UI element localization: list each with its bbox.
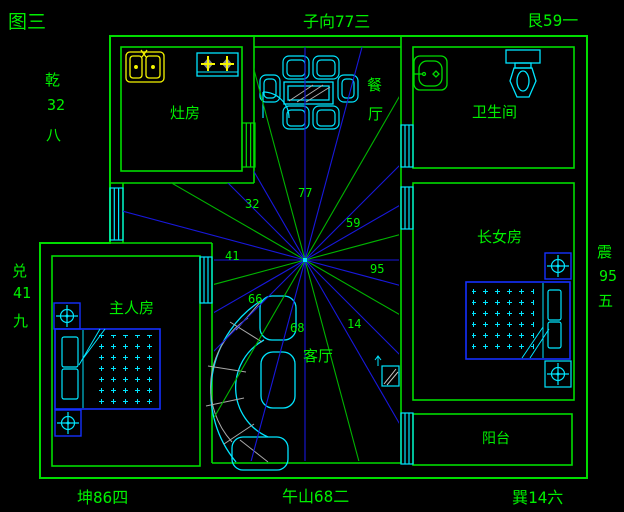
bathroom-sink-icon (414, 56, 447, 90)
compass-ray (68, 260, 305, 323)
nightstand-icon (545, 253, 571, 279)
window-balcony-left (401, 413, 413, 464)
sofa-icon (206, 296, 296, 470)
nightstand-icon (545, 361, 571, 387)
dining-label-char1: 餐 (367, 76, 382, 94)
floorplan-drawing: 77 32 59 41 95 66 68 14 灶房 餐 厅 卫生间 长女房 主… (0, 0, 624, 512)
nightstand-icon (55, 410, 81, 436)
tv-icon (375, 356, 399, 386)
compass-left-lower-2: 41 (13, 284, 31, 302)
balcony-label: 阳台 (482, 431, 510, 447)
compass-right-2: 95 (599, 267, 617, 285)
bathroom-label: 卫生间 (472, 103, 517, 121)
ray-number: 77 (298, 186, 312, 200)
compass-ray (132, 260, 305, 433)
kitchen-sink-icon (126, 50, 164, 82)
chair-icon (313, 106, 339, 129)
burner-icon (220, 56, 234, 71)
window-master-right (200, 257, 212, 303)
compass-bottom-right: 巽14六 (512, 488, 563, 507)
compass-ray (68, 197, 305, 260)
compass-left-upper-2: 32 (47, 96, 65, 114)
ray-number: 32 (245, 197, 259, 211)
compass-ray (183, 260, 306, 472)
compass-top-center: 子向77三 (303, 12, 370, 31)
ray-number: 66 (248, 292, 262, 306)
daughter-bed-icon (466, 282, 570, 359)
kitchen-label: 灶房 (170, 104, 200, 122)
compass-left-lower-3: 九 (13, 312, 28, 330)
compass-left-upper-1: 乾 (45, 71, 60, 89)
compass-ray (132, 87, 305, 260)
window-bathroom-left (401, 125, 413, 167)
ray-number: 59 (346, 216, 360, 230)
compass-right-3: 五 (598, 292, 613, 310)
stove-icon (197, 53, 238, 76)
ray-number: 14 (347, 317, 361, 331)
window-hall-left (110, 188, 123, 240)
nightstand-icon (54, 303, 80, 329)
toilet-icon (506, 50, 540, 97)
ray-number: 41 (225, 249, 239, 263)
compass-top-right: 艮59一 (527, 11, 578, 30)
compass-bottom-center: 午山68二 (282, 487, 349, 506)
living-label: 客厅 (303, 347, 333, 365)
chair-icon (313, 56, 339, 79)
compass-ray (305, 87, 478, 260)
master-bed-icon (55, 329, 160, 409)
window-daughter-left (401, 187, 413, 229)
burner-icon (201, 56, 215, 71)
window-kitchen-right (242, 123, 255, 167)
compass-left-lower-1: 兑 (12, 262, 27, 280)
drawing-title: 图三 (8, 11, 46, 33)
compass-ray (183, 48, 306, 260)
compass-right-1: 震 (597, 243, 612, 261)
ray-number: 68 (290, 321, 304, 335)
room-labels: 灶房 餐 厅 卫生间 长女房 主人房 客厅 阳台 (109, 76, 522, 447)
dining-table-icon (284, 82, 333, 104)
compass-bottom-left: 坤86四 (77, 488, 128, 507)
dining-label-char2: 厅 (368, 105, 383, 123)
ray-number: 95 (370, 262, 384, 276)
compass-center (303, 258, 307, 262)
master-label: 主人房 (109, 299, 154, 317)
compass-left-upper-3: 八 (46, 126, 61, 144)
floorplan-canvas: 77 32 59 41 95 66 68 14 灶房 餐 厅 卫生间 长女房 主… (0, 0, 624, 512)
daughter-label: 长女房 (477, 228, 522, 246)
compass-ray (305, 260, 368, 497)
compass-ray (93, 138, 305, 261)
